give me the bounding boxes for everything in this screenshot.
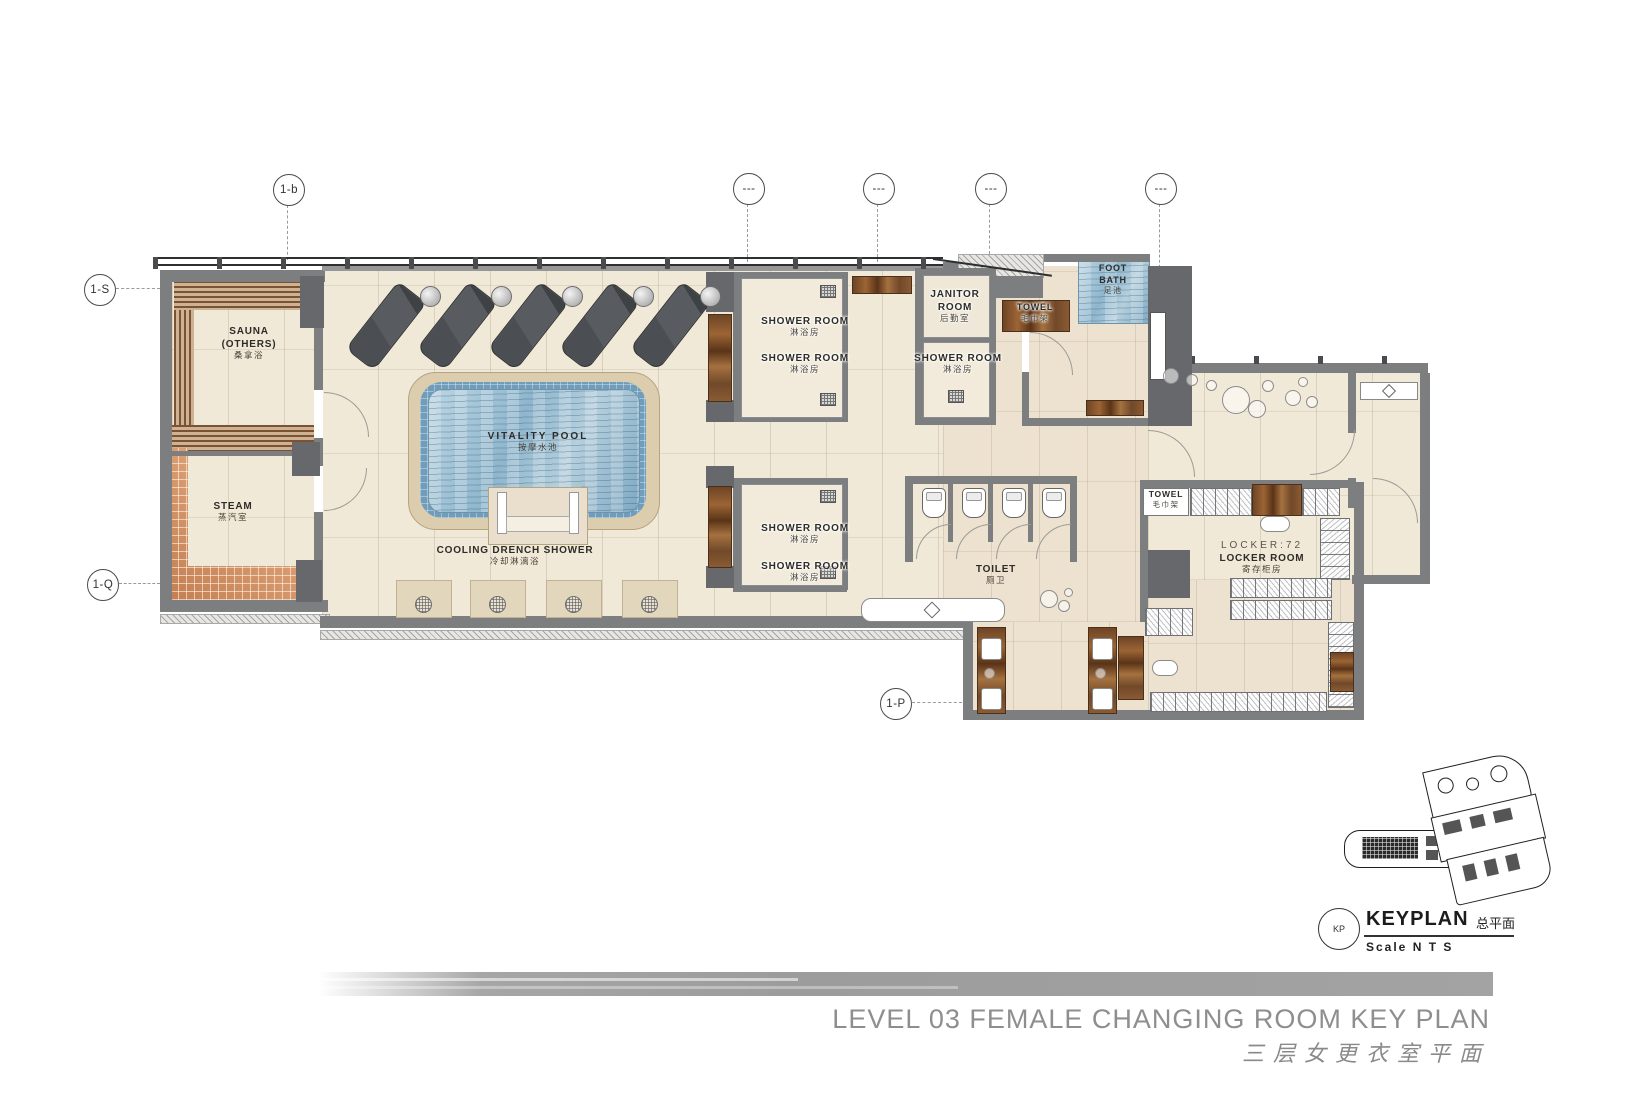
label-text-cn: 足池: [1080, 286, 1146, 296]
keyplan-scale: Scale N T S: [1366, 940, 1453, 954]
grid-marker-dash-2: ---: [863, 173, 895, 205]
room-label-sauna: SAUNA (OTHERS) 桑拿浴: [199, 325, 299, 362]
toilet-fixture: [962, 488, 986, 518]
sheet-title-text: LEVEL 03 FEMALE CHANGING ROOM KEY PLAN: [832, 1004, 1490, 1034]
wall-pier: [300, 276, 324, 328]
grid-label: 1-b: [280, 184, 298, 196]
bench: [1152, 660, 1178, 676]
label-text-cn: 按摩水池: [478, 443, 598, 454]
sink-basin: [1092, 638, 1113, 660]
wall: [1420, 373, 1430, 582]
wall: [1354, 482, 1364, 720]
label-text-cn: 淋浴房: [913, 365, 1003, 376]
room-label-shower-1: SHOWER ROOM 淋浴房: [760, 315, 850, 339]
room-label-shower-4: SHOWER ROOM 淋浴房: [760, 522, 850, 546]
side-table: [491, 286, 512, 307]
vanity-stool: [1285, 390, 1301, 406]
floor-plan-sheet: 1-b --- --- --- --- 1-S 1-Q 1-P: [0, 0, 1650, 1100]
label-text-cn: 桑拿浴: [199, 351, 299, 362]
door-opening: [314, 390, 323, 438]
side-table: [633, 286, 654, 307]
label-text: SAUNA: [199, 325, 299, 338]
grid-marker-1p: 1-P: [880, 688, 912, 720]
label-text: COOLING DRENCH SHOWER: [425, 544, 605, 557]
room-label-locker: LOCKER:72 LOCKER ROOM 寄存柜房: [1202, 539, 1322, 576]
sink-basin: [981, 638, 1002, 660]
room-label-janitor: JANITOR ROOM 后勤室: [915, 288, 995, 325]
label-text: SHOWER ROOM: [760, 560, 850, 573]
grid-leader-line: [287, 205, 289, 260]
wall: [1022, 418, 1152, 426]
vanity-stool: [1248, 400, 1266, 418]
wall-pier: [292, 442, 320, 476]
lockers: [1320, 518, 1350, 580]
lockers: [1150, 692, 1327, 712]
grid-label: 1-Q: [93, 579, 114, 591]
label-text-cn: 淋浴房: [760, 535, 850, 546]
vanity-stool: [1206, 380, 1217, 391]
wall: [733, 586, 847, 592]
side-table: [700, 286, 721, 307]
sheet-title-cn-text: 三层女更衣室平面: [1242, 1042, 1490, 1067]
title-bar-streak: [318, 986, 958, 989]
wood-bench: [1086, 400, 1144, 416]
label-text-cn: 毛巾架: [1143, 500, 1189, 510]
wall: [1352, 575, 1430, 584]
label-text: TOILET: [956, 563, 1036, 576]
toilet-fixture: [1042, 488, 1066, 518]
shower-fixture-icon: [415, 596, 432, 613]
sink-basin: [981, 688, 1002, 710]
wall: [1028, 254, 1150, 262]
keyplan-scale-text: Scale N T S: [1366, 940, 1453, 954]
toilet-fixture: [1002, 488, 1026, 518]
stool: [1095, 668, 1106, 679]
wall: [905, 476, 913, 562]
lockers: [1230, 578, 1332, 598]
side-table: [562, 286, 583, 307]
grid-label: ---: [873, 183, 886, 195]
wall: [1348, 373, 1356, 433]
grid-leader-line: [747, 204, 749, 262]
shower-head-icon: [820, 490, 836, 503]
grid-label: ---: [743, 183, 756, 195]
door-panel: [1150, 312, 1166, 380]
room-label-steam: STEAM 蒸汽室: [183, 500, 283, 524]
stool: [1058, 600, 1070, 612]
sheet-title: LEVEL 03 FEMALE CHANGING ROOM KEY PLAN: [690, 1004, 1490, 1035]
label-text-cn: 蒸汽室: [183, 513, 283, 524]
shower-head-icon: [820, 393, 836, 406]
stool: [984, 668, 995, 679]
vanity-stool: [1306, 396, 1318, 408]
sauna-wood-slats: [174, 310, 194, 430]
label-text: SHOWER ROOM: [760, 522, 850, 535]
keyplan-badge-text: KP: [1333, 924, 1345, 934]
grid-marker-1q: 1-Q: [87, 569, 119, 601]
label-text: FOOT: [1080, 263, 1146, 275]
wall: [1348, 478, 1356, 508]
keyplan-title-cn: 总平面: [1476, 913, 1515, 932]
grid-leader-line: [989, 204, 991, 254]
sheet-title-cn: 三层女更衣室平面: [890, 1036, 1490, 1068]
label-text-cn: 淋浴房: [760, 328, 850, 339]
label-text-cn: 寄存柜房: [1202, 565, 1322, 576]
room-label-towel-1: TOWEL 毛巾架: [1005, 302, 1065, 324]
label-text: (OTHERS): [199, 338, 299, 351]
lockers: [1145, 608, 1193, 636]
keyplan-badge: KP: [1318, 908, 1360, 950]
grid-leader-line: [877, 204, 879, 262]
wall-pier: [1148, 550, 1190, 598]
label-text: BATH: [1080, 275, 1146, 287]
wall-pier: [706, 400, 734, 422]
room-label-shower-3: SHOWER ROOM 淋浴房: [913, 352, 1003, 376]
grid-leader-line: [119, 583, 160, 585]
wood-bench: [852, 276, 912, 294]
bench: [1260, 516, 1290, 532]
wall-pier: [706, 466, 734, 488]
label-text: JANITOR: [915, 288, 995, 301]
wall-pier: [706, 566, 734, 588]
wood-cabinet: [1118, 636, 1144, 700]
wood-bench: [708, 486, 732, 568]
keyplan-title-cn-text: 总平面: [1476, 917, 1515, 932]
wood-bench: [708, 314, 732, 402]
keyplan-title: KEYPLAN: [1366, 908, 1469, 931]
label-text: SHOWER ROOM: [913, 352, 1003, 365]
wall-hatch: [160, 614, 330, 624]
curtain-wall-mullions: [153, 257, 943, 269]
wall: [963, 622, 973, 718]
room-label-foot-bath: FOOT BATH 足池: [1080, 263, 1146, 297]
wall: [1190, 363, 1428, 373]
wall: [905, 476, 1077, 484]
shower-fixture-icon: [565, 596, 582, 613]
lockers: [1302, 488, 1340, 516]
label-text: TOWEL: [1005, 302, 1065, 314]
keyplan-footprint: [1338, 752, 1553, 912]
vanity-stool: [1222, 386, 1250, 414]
side-table: [420, 286, 441, 307]
label-text: ROOM: [915, 301, 995, 314]
vanity-stool: [1163, 368, 1179, 384]
label-text-cn: 厕卫: [956, 576, 1036, 587]
grid-label: ---: [1155, 183, 1168, 195]
label-text: VITALITY POOL: [478, 430, 598, 443]
keyplan-underline: [1364, 935, 1514, 937]
wall-hatch: [320, 630, 970, 640]
shower-bench: [506, 516, 570, 532]
label-text: TOWEL: [1143, 489, 1189, 500]
wall: [1070, 476, 1077, 562]
vanity-stool: [1298, 377, 1308, 387]
grid-leader-line: [116, 288, 160, 290]
grid-marker-1b: 1-b: [273, 174, 305, 206]
stool: [1040, 590, 1058, 608]
lockers: [1230, 600, 1332, 620]
keyplan-right-group: [1416, 735, 1566, 914]
grid-leader-line: [912, 702, 962, 704]
grid-label: 1-S: [90, 284, 109, 296]
vanity-stool: [1186, 374, 1198, 386]
wall: [915, 268, 996, 275]
label-text: LOCKER ROOM: [1202, 552, 1322, 565]
room-label-toilet: TOILET 厕卫: [956, 563, 1036, 587]
title-bar-graphic: [318, 972, 1493, 996]
keyplan-title-text: KEYPLAN: [1366, 908, 1469, 930]
grid-label: 1-P: [886, 698, 905, 710]
grid-marker-dash-4: ---: [1145, 173, 1177, 205]
label-text: STEAM: [183, 500, 283, 513]
lockers: [1190, 488, 1252, 516]
stool: [1064, 588, 1073, 597]
wall: [160, 270, 172, 612]
wall-pier: [296, 560, 322, 602]
room-label-vitality-pool: VITALITY POOL 按摩水池: [478, 430, 598, 454]
window-mullions: [1190, 356, 1428, 364]
vanity-stool: [1262, 380, 1274, 392]
wall: [915, 418, 996, 425]
door-opening: [1022, 330, 1029, 372]
label-text: SHOWER ROOM: [760, 352, 850, 365]
grid-marker-1s: 1-S: [84, 274, 116, 306]
wall: [1143, 480, 1355, 488]
wall: [733, 478, 741, 590]
sink-basin: [1092, 688, 1113, 710]
label-text-cn: 后勤室: [915, 314, 995, 325]
label-text-cn: 淋浴房: [760, 365, 850, 376]
shower-fixture-icon: [489, 596, 506, 613]
grid-marker-dash-1: ---: [733, 173, 765, 205]
room-label-cooling-shower: COOLING DRENCH SHOWER 冷却淋漓浴: [425, 544, 605, 568]
shower-head-icon: [948, 390, 964, 403]
wood-shelf: [1252, 484, 1302, 516]
shower-head-icon: [820, 285, 836, 298]
grid-label: ---: [985, 183, 998, 195]
label-text-cn: 毛巾架: [1005, 314, 1065, 324]
room-label-shower-5: SHOWER ROOM 淋浴房: [760, 560, 850, 584]
label-text-cn: 淋浴房: [760, 573, 850, 584]
keyplan-hatch: [1362, 837, 1418, 859]
label-text: LOCKER:72: [1202, 539, 1322, 552]
grid-marker-dash-3: ---: [975, 173, 1007, 205]
label-text: SHOWER ROOM: [760, 315, 850, 328]
label-text-cn: 冷却淋漓浴: [425, 557, 605, 568]
toilet-fixture: [922, 488, 946, 518]
shower-fixture-icon: [641, 596, 658, 613]
title-bar-streak: [318, 978, 798, 981]
wood-bench: [1330, 652, 1354, 692]
shower-post: [569, 492, 579, 534]
room-label-towel-2: TOWEL 毛巾架: [1143, 489, 1189, 510]
room-label-shower-2: SHOWER ROOM 淋浴房: [760, 352, 850, 376]
